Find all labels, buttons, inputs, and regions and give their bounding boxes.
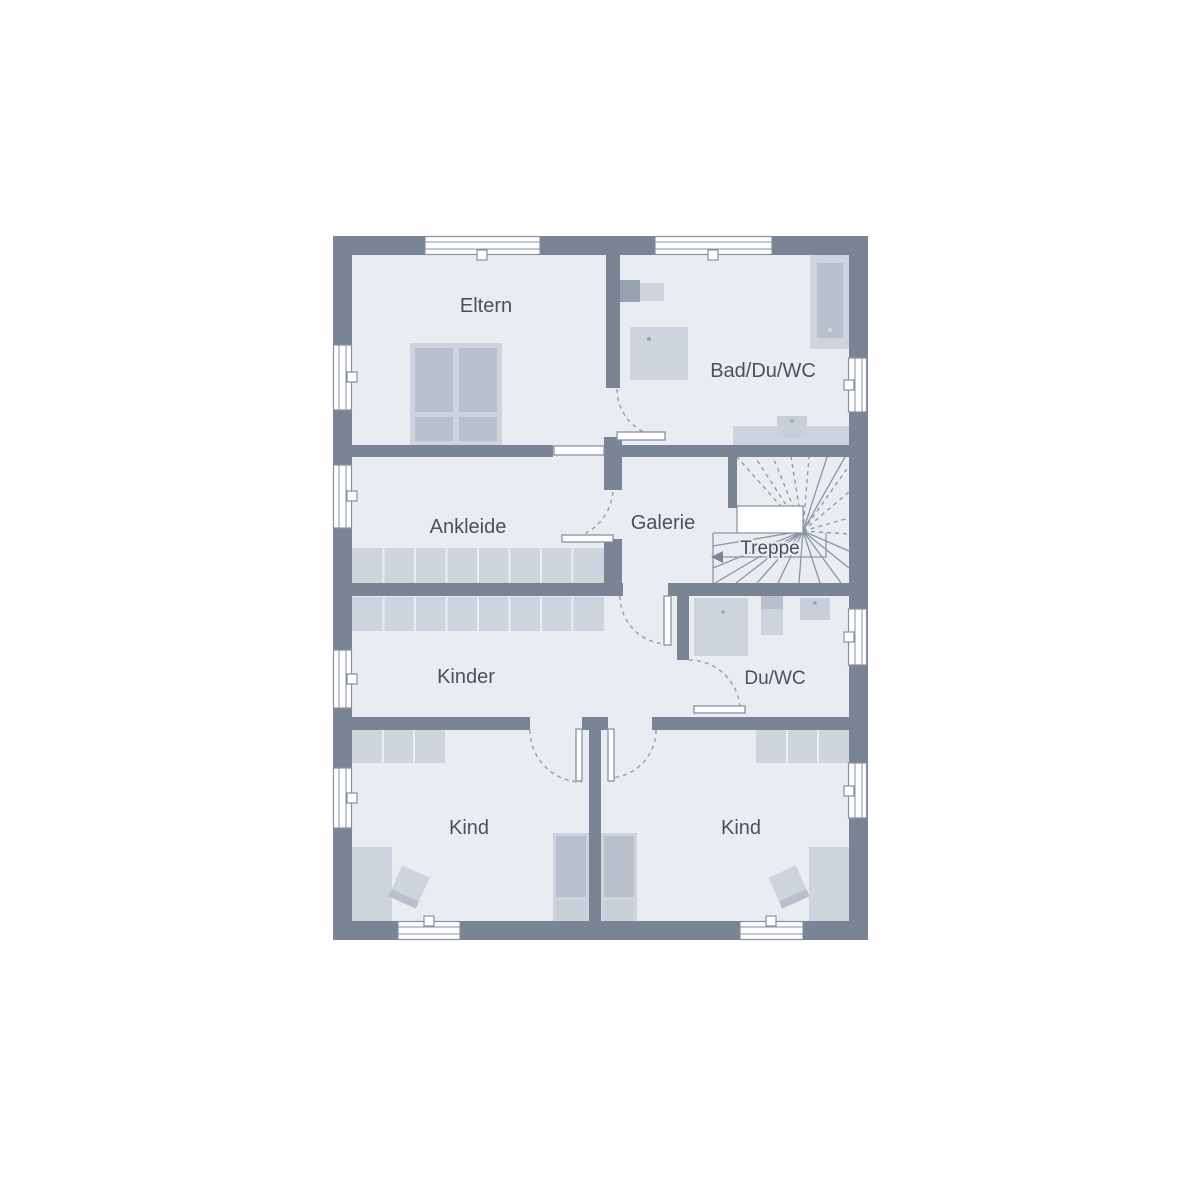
room-label-kind-left: Kind: [449, 817, 489, 839]
shower-icon: [694, 598, 748, 656]
stair-landing: [737, 506, 803, 533]
bathtub-icon: [810, 252, 849, 349]
desk-icon: [809, 847, 849, 921]
room-label-kinder: Kinder: [437, 666, 495, 688]
desk-icon: [352, 847, 392, 921]
room-label-du-wc: Du/WC: [744, 668, 805, 689]
room-label-treppe: Treppe: [740, 538, 800, 559]
room-label-eltern: Eltern: [460, 295, 512, 317]
floorplan-drawing: Eltern Bad/Du/WC Ankleide Galerie Treppe…: [0, 0, 1200, 1200]
kinder-wardrobe-icon: [352, 597, 604, 631]
wardrobe-icon: [756, 730, 849, 763]
door-eltern-ankleide: [554, 446, 604, 455]
shower-icon: [630, 327, 688, 380]
ankleide-wardrobe-icon: [352, 548, 604, 583]
room-label-bad-du-wc: Bad/Du/WC: [710, 360, 816, 382]
room-label-galerie: Galerie: [631, 512, 695, 534]
floorplan-page: Eltern Bad/Du/WC Ankleide Galerie Treppe…: [0, 0, 1200, 1200]
wardrobe-icon: [352, 730, 445, 763]
toilet-icon: [640, 283, 664, 301]
toilet-prewall: [620, 280, 640, 302]
room-label-ankleide: Ankleide: [430, 516, 507, 538]
eltern-double-bed-icon: [410, 343, 502, 446]
single-bed-icon: [553, 833, 589, 921]
single-bed-icon: [601, 833, 637, 921]
toilet-icon: [761, 596, 783, 635]
room-label-kind-right: Kind: [721, 817, 761, 839]
